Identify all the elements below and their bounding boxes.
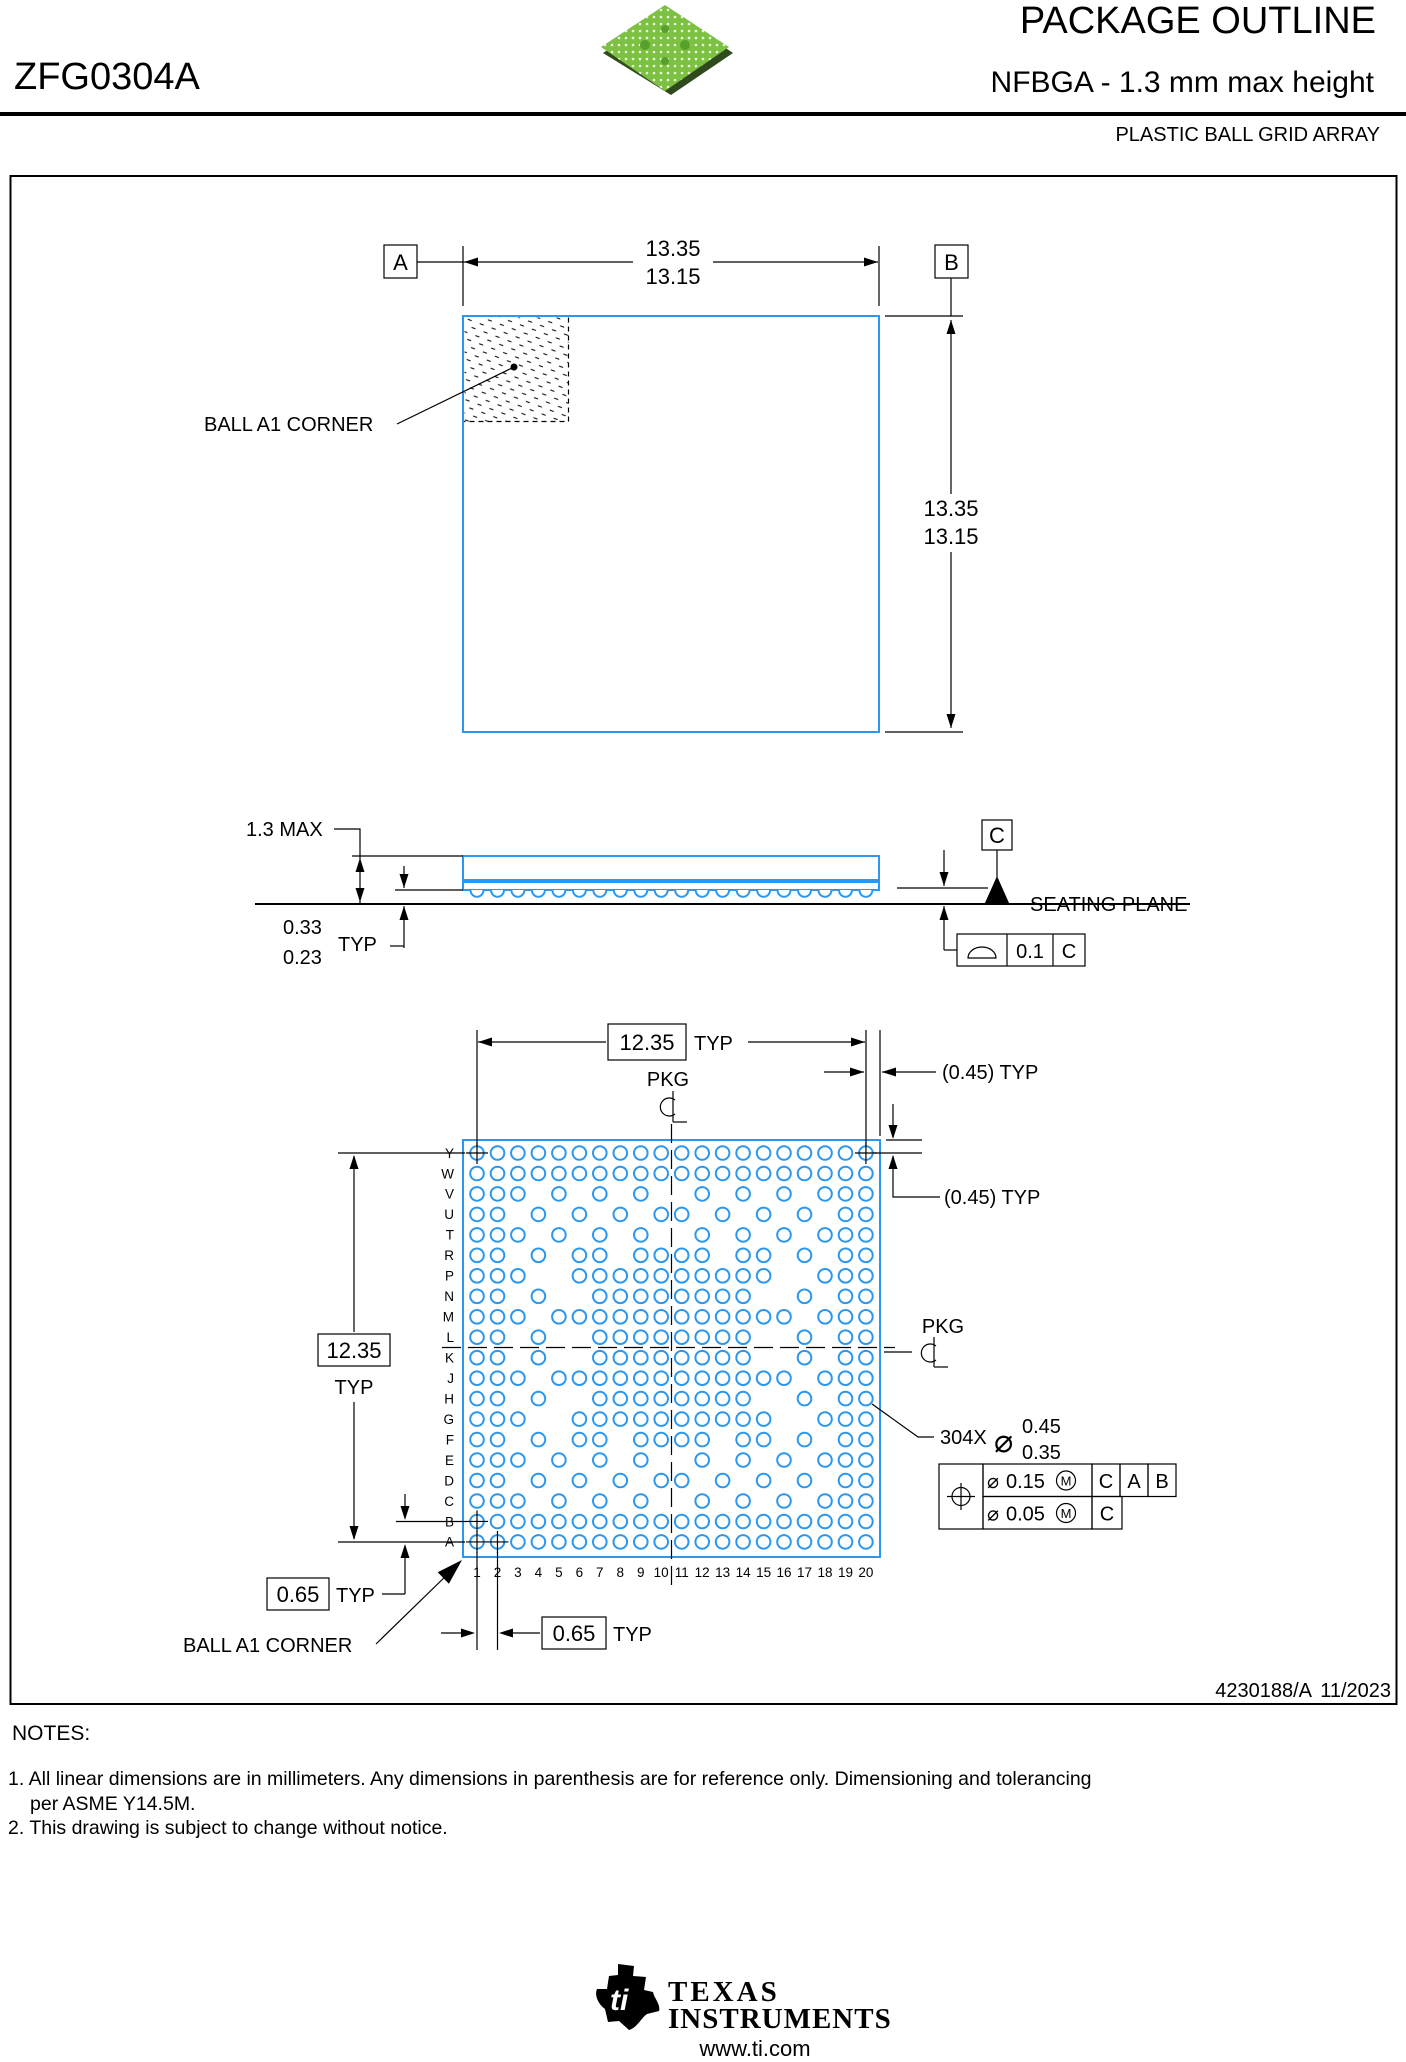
svg-text:12: 12 — [695, 1565, 710, 1580]
svg-text:20: 20 — [858, 1565, 873, 1580]
pos-datum-3: B — [1155, 1471, 1168, 1493]
ball-count: 304X — [940, 1427, 987, 1449]
pitch-v-typ: TYP — [335, 1377, 374, 1399]
ti-logo-icon: ti — [596, 1964, 659, 2030]
pitch-local-left-value: 0.65 — [277, 1582, 320, 1607]
svg-text:U: U — [444, 1207, 454, 1222]
revision-date: 11/2023 — [1320, 1680, 1391, 1702]
pos-tol-modifier: M — [1061, 1474, 1072, 1489]
document-number: 4230188/A — [1215, 1680, 1312, 1702]
side-view-balls — [471, 890, 873, 897]
header-rule — [0, 112, 1406, 116]
pitch-local-left-typ: TYP — [336, 1585, 375, 1607]
ball-dia-min: 0.35 — [1022, 1442, 1061, 1464]
svg-text:11: 11 — [675, 1565, 689, 1580]
svg-text:16: 16 — [776, 1565, 791, 1580]
svg-text:P: P — [445, 1269, 454, 1284]
centerline-symbol-top — [660, 1091, 687, 1122]
pos-tol-value: 0.15 — [1006, 1471, 1045, 1493]
note-2: 2. This drawing is subject to change wit… — [8, 1817, 448, 1840]
datum-c-label: C — [989, 823, 1005, 848]
ball-a1-corner-label-bottom: BALL A1 CORNER — [183, 1635, 352, 1657]
seating-plane-label: SEATING PLANE — [1030, 894, 1187, 916]
note-1-continued: per ASME Y14.5M. — [30, 1793, 195, 1816]
dimension-arrowheads — [350, 258, 956, 1638]
top-view: BALL A1 CORNER A 13.35 13.15 B 13.35 13.… — [204, 236, 979, 732]
pitch-h-value: 12.35 — [619, 1030, 674, 1055]
svg-text:2: 2 — [494, 1565, 502, 1580]
svg-text:L: L — [446, 1330, 454, 1345]
svg-text:H: H — [444, 1391, 454, 1406]
edge-gap-v-label: (0.45) TYP — [944, 1187, 1040, 1209]
svg-text:G: G — [443, 1412, 454, 1427]
svg-text:F: F — [446, 1432, 454, 1447]
ball-height-min: 0.23 — [283, 947, 322, 969]
datum-c-triangle — [985, 876, 1009, 903]
svg-text:10: 10 — [654, 1565, 669, 1580]
svg-text:C: C — [444, 1494, 454, 1509]
a1-hatch-region — [465, 318, 569, 422]
svg-text:E: E — [445, 1453, 454, 1468]
svg-text:9: 9 — [637, 1565, 645, 1580]
svg-text:R: R — [444, 1248, 454, 1263]
datum-a-label: A — [393, 250, 408, 275]
package-family: PLASTIC BALL GRID ARRAY — [1115, 124, 1380, 147]
drawing-canvas: BALL A1 CORNER A 13.35 13.15 B 13.35 13.… — [0, 0, 1406, 2062]
svg-text:J: J — [447, 1371, 454, 1386]
pkg-label-top: PKG — [647, 1069, 689, 1091]
pitch-local-bottom-typ: TYP — [613, 1624, 652, 1646]
pitch-local-bottom-value: 0.65 — [553, 1621, 596, 1646]
ball-dia-max: 0.45 — [1022, 1416, 1061, 1438]
svg-text:T: T — [446, 1228, 454, 1243]
page-title: PACKAGE OUTLINE — [1020, 0, 1376, 43]
top-height-min: 13.15 — [923, 524, 978, 549]
package-subtitle: NFBGA - 1.3 mm max height — [991, 66, 1374, 100]
centerline-symbol-right — [884, 1337, 948, 1367]
svg-text:N: N — [444, 1289, 454, 1304]
svg-text:A: A — [445, 1535, 454, 1550]
sec-datum: C — [1100, 1504, 1114, 1526]
svg-text:1: 1 — [473, 1565, 481, 1580]
position-symbol-icon — [947, 1483, 975, 1510]
diameter-symbol-icon: ⌀ — [994, 1423, 1013, 1459]
svg-text:15: 15 — [756, 1565, 771, 1580]
top-width-max: 13.35 — [645, 236, 700, 261]
position-tolerance-frame: ⌀ 0.15 M C A B ⌀ 0.05 M C — [939, 1464, 1176, 1529]
svg-text:Y: Y — [445, 1146, 454, 1161]
svg-text:5: 5 — [555, 1565, 563, 1580]
height-max-label: 1.3 MAX — [246, 819, 323, 841]
pos-datum-2: A — [1127, 1471, 1141, 1493]
ball-height-max: 0.33 — [283, 917, 322, 939]
svg-text:V: V — [445, 1187, 454, 1202]
sec-tol-modifier: M — [1061, 1506, 1072, 1521]
top-height-max: 13.35 — [923, 496, 978, 521]
sec-tol-value: 0.05 — [1006, 1504, 1045, 1526]
note-1: 1. All linear dimensions are in millimet… — [8, 1768, 1092, 1791]
flatness-symbol-icon — [968, 947, 996, 958]
ti-website-link[interactable]: www.ti.com — [630, 2036, 880, 2062]
drawing-frame — [11, 176, 1397, 1704]
pos-datum-1: C — [1099, 1471, 1113, 1493]
svg-text:3: 3 — [514, 1565, 522, 1580]
pitch-h-typ: TYP — [694, 1033, 733, 1055]
pkg-label-right: PKG — [922, 1316, 964, 1338]
top-width-min: 13.15 — [645, 264, 700, 289]
svg-text:4: 4 — [535, 1565, 543, 1580]
svg-text:M: M — [443, 1310, 454, 1325]
pos-dia-symbol: ⌀ — [987, 1471, 999, 1493]
side-view: 1.3 MAX 0.33 0.23 TYP C SEATING PLANE 0.… — [246, 819, 1190, 969]
svg-text:6: 6 — [576, 1565, 584, 1580]
part-number: ZFG0304A — [14, 56, 200, 99]
svg-text:7: 7 — [596, 1565, 604, 1580]
svg-text:K: K — [445, 1351, 454, 1366]
svg-text:W: W — [441, 1166, 454, 1181]
sec-dia-symbol: ⌀ — [987, 1504, 999, 1526]
bottom-view: PKG PKG 12.35 TYP — [183, 1024, 1176, 1657]
svg-text:18: 18 — [817, 1565, 832, 1580]
flatness-value: 0.1 — [1016, 941, 1044, 963]
chip-icon — [601, 5, 733, 95]
package-outline-page: BALL A1 CORNER A 13.35 13.15 B 13.35 13.… — [0, 0, 1406, 2062]
notes-heading: NOTES: — [12, 1722, 90, 1746]
svg-text:17: 17 — [797, 1565, 812, 1580]
ball-height-typ: TYP — [338, 934, 377, 956]
svg-text:8: 8 — [617, 1565, 625, 1580]
svg-text:13: 13 — [715, 1565, 730, 1580]
svg-text:14: 14 — [736, 1565, 752, 1580]
flatness-datum: C — [1062, 941, 1076, 963]
datum-b-label: B — [944, 250, 959, 275]
svg-text:B: B — [445, 1514, 454, 1529]
brand-instruments: INSTRUMENTS — [668, 2003, 892, 2036]
edge-gap-h-label: (0.45) TYP — [942, 1062, 1038, 1084]
svg-text:19: 19 — [838, 1565, 853, 1580]
svg-text:D: D — [444, 1473, 454, 1488]
pitch-v-value: 12.35 — [326, 1338, 381, 1363]
ball-a1-corner-label-top: BALL A1 CORNER — [204, 414, 373, 436]
svg-text:ti: ti — [610, 1984, 629, 2017]
